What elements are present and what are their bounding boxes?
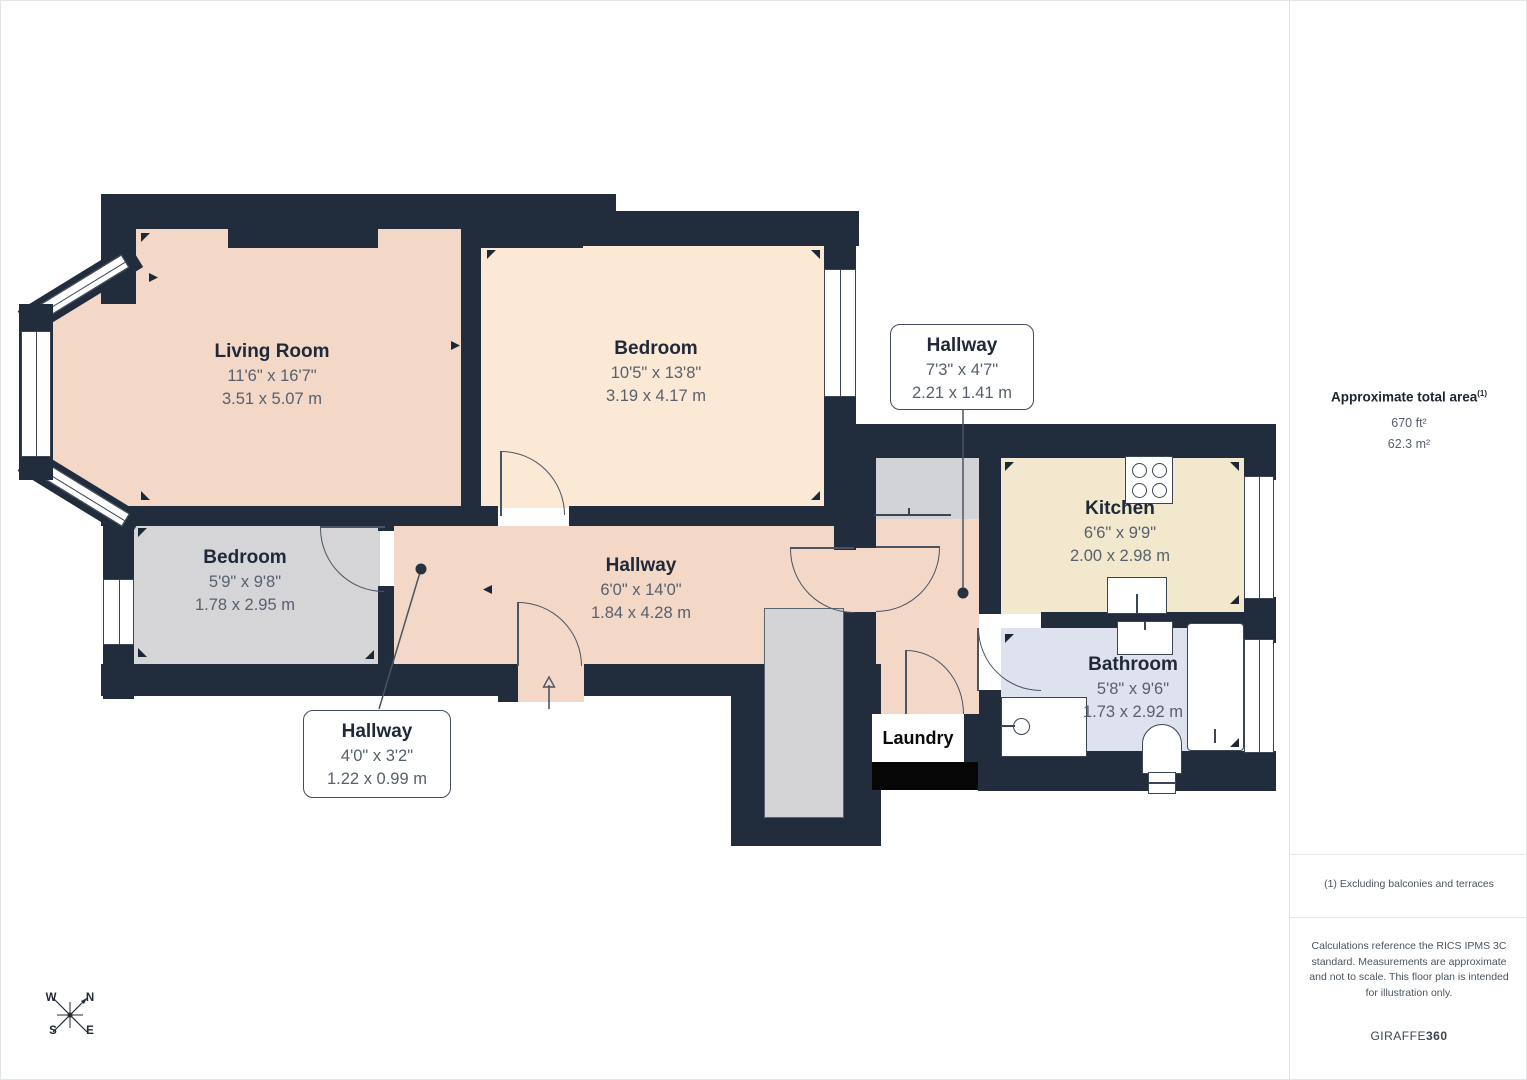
wall: [978, 751, 1276, 791]
compass-w: W: [46, 992, 57, 1004]
room-label-bathroom: Bathroom 5'8" x 9'6" 1.73 x 2.92 m: [1013, 651, 1253, 724]
compass-icon: W N S E: [46, 992, 95, 1037]
storage-closet: [873, 456, 991, 519]
room-name: Hallway: [891, 332, 1033, 359]
window: [824, 269, 856, 397]
giraffe360-logo: GIRAFFE360: [1290, 1029, 1527, 1043]
total-area-ft: 670 ft²: [1290, 416, 1527, 430]
wall: [378, 586, 394, 666]
bathroom-sink-tap: [1144, 621, 1146, 630]
room-dims-metric: 1.22 x 0.99 m: [304, 768, 450, 791]
wall: [101, 194, 616, 229]
floorplan-page: W N S E Living Room 11'6" x 16'7" 3.51 x…: [0, 0, 1527, 1080]
wall: [461, 229, 481, 526]
room-dims-metric: 3.19 x 4.17 m: [536, 385, 776, 408]
room-name: Hallway: [304, 718, 450, 745]
toilet-base-line: [1148, 782, 1176, 784]
compass-s: S: [49, 1025, 57, 1037]
hallway-door-opening: [854, 546, 876, 614]
door-leaf: [517, 602, 519, 666]
total-area-title: Approximate total area(1): [1290, 389, 1527, 405]
bathtub-tap: [1214, 729, 1216, 743]
room-label-bedroom-left: Bedroom 5'9" x 9'8" 1.78 x 2.95 m: [125, 544, 365, 617]
total-area-m: 62.3 m²: [1290, 437, 1527, 451]
brand-360: 360: [1426, 1029, 1448, 1043]
compass-n: N: [86, 992, 94, 1004]
room-name: Hallway: [521, 552, 761, 579]
door-leaf: [790, 547, 854, 549]
sidebar: Approximate total area(1) 670 ft² 62.3 m…: [1289, 1, 1527, 1080]
room-label-living-room: Living Room 11'6" x 16'7" 3.51 x 5.07 m: [152, 338, 392, 411]
door-leaf: [500, 451, 502, 516]
room-label-hallway-main: Hallway 6'0" x 14'0" 1.84 x 4.28 m: [521, 552, 761, 625]
room-dims-metric: 3.51 x 5.07 m: [152, 388, 392, 411]
wall: [101, 506, 498, 526]
room-dims-metric: 2.00 x 2.98 m: [1000, 545, 1240, 568]
wall: [569, 506, 861, 526]
wall: [481, 229, 583, 248]
staircase: [764, 608, 844, 818]
total-area-title-text: Approximate total area: [1331, 390, 1477, 405]
room-label-bedroom-top: Bedroom 10'5" x 13'8" 3.19 x 4.17 m: [536, 335, 776, 408]
room-label-laundry: Laundry: [872, 714, 964, 762]
door-leaf: [977, 628, 979, 691]
room-dims-imperial: 5'8" x 9'6": [1013, 678, 1253, 701]
brand-giraffe: GIRAFFE: [1370, 1029, 1426, 1043]
wall: [498, 664, 518, 702]
room-dims-metric: 1.84 x 4.28 m: [521, 602, 761, 625]
callout-hallway-small: Hallway 4'0" x 3'2" 1.22 x 0.99 m: [303, 710, 451, 798]
room-dims-imperial: 10'5" x 13'8": [536, 362, 776, 385]
laundry-block: [872, 762, 978, 790]
room-name: Bedroom: [125, 544, 365, 571]
window: [21, 331, 51, 457]
room-name: Laundry: [882, 728, 953, 749]
door-leaf: [320, 526, 385, 528]
room-name: Bedroom: [536, 335, 776, 362]
wall: [963, 714, 1003, 762]
door-leaf: [876, 546, 940, 548]
area-footnote: (1) Excluding balconies and terraces: [1290, 878, 1527, 890]
shower-arm: [1001, 725, 1015, 727]
wall-chimney: [228, 229, 378, 248]
room-name: Living Room: [152, 338, 392, 365]
divider: [1290, 917, 1527, 918]
room-dims-metric: 2.21 x 1.41 m: [891, 382, 1033, 405]
room-label-kitchen: Kitchen 6'6" x 9'9" 2.00 x 2.98 m: [1000, 495, 1240, 568]
wall: [101, 664, 518, 696]
room-dims-metric: 1.78 x 2.95 m: [125, 594, 365, 617]
wall: [979, 456, 1001, 614]
room-name: Bathroom: [1013, 651, 1253, 678]
wall: [854, 424, 1276, 458]
compass-e: E: [86, 1025, 94, 1037]
room-dims-imperial: 5'9" x 9'8": [125, 571, 365, 594]
wall: [581, 211, 859, 246]
door-leaf: [905, 650, 907, 714]
wall: [979, 690, 1001, 716]
window: [1244, 476, 1274, 599]
divider: [1290, 854, 1527, 855]
wall: [1244, 597, 1276, 643]
room-dims-metric: 1.73 x 2.92 m: [1013, 701, 1253, 724]
room-dims-imperial: 6'6" x 9'9": [1000, 522, 1240, 545]
footnote-marker: (1): [1477, 389, 1487, 398]
room-name: Kitchen: [1000, 495, 1240, 522]
room-hallway-entrance-recess: [516, 664, 584, 702]
kitchen-sink-tap: [1136, 594, 1138, 614]
disclaimer-text: Calculations reference the RICS IPMS 3C …: [1304, 939, 1514, 1001]
room-dims-imperial: 4'0" x 3'2": [304, 745, 450, 768]
sliding-door-tick: [908, 508, 910, 516]
sliding-door-track: [874, 514, 951, 516]
wall: [834, 506, 856, 550]
wall: [824, 394, 856, 524]
room-dims-imperial: 6'0" x 14'0": [521, 579, 761, 602]
callout-hallway-right: Hallway 7'3" x 4'7" 2.21 x 1.41 m: [890, 324, 1034, 410]
room-dims-imperial: 11'6" x 16'7": [152, 365, 392, 388]
room-dims-imperial: 7'3" x 4'7": [891, 359, 1033, 382]
toilet-icon: [1142, 724, 1182, 774]
